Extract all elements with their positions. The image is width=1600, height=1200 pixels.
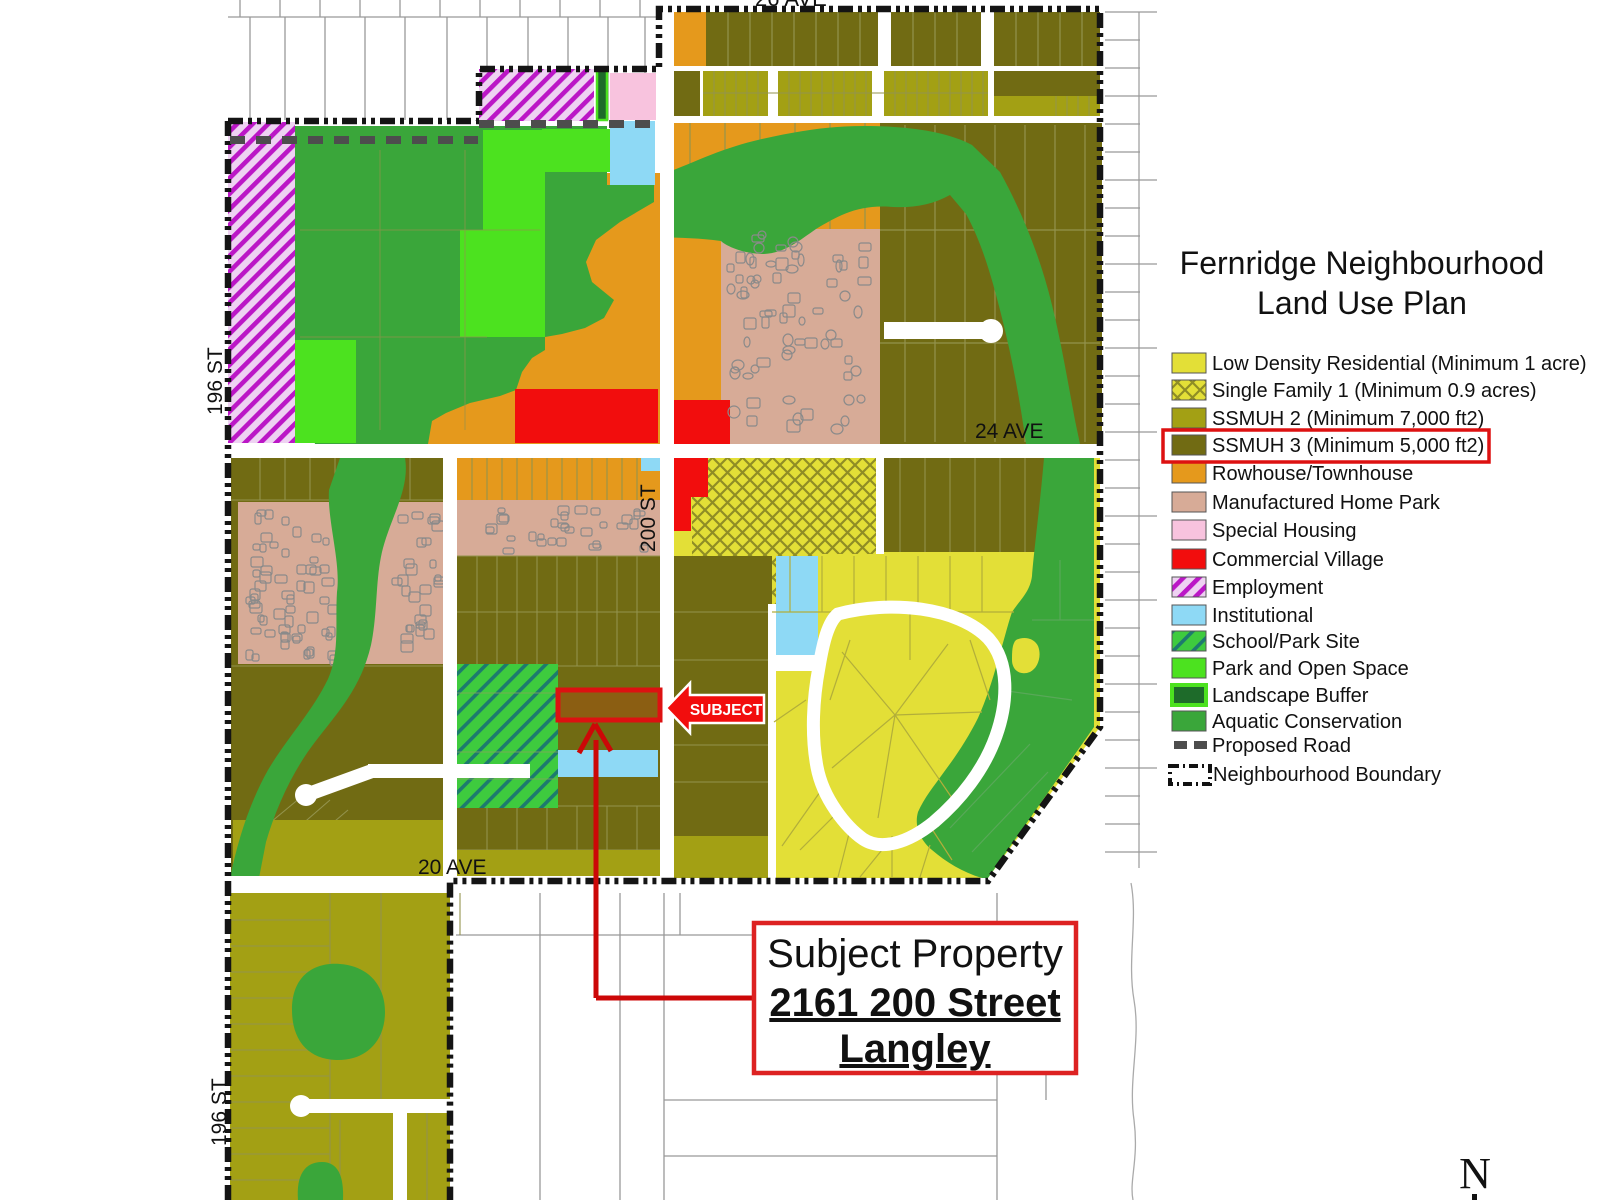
svg-text:Subject Property: Subject Property <box>767 932 1063 976</box>
svg-text:Low Density Residential (Minim: Low Density Residential (Minimum 1 acre) <box>1212 353 1587 375</box>
svg-text:20 AVE: 20 AVE <box>418 856 487 879</box>
svg-text:Fernridge Neighbourhood: Fernridge Neighbourhood <box>1180 245 1545 281</box>
svg-text:Aquatic Conservation: Aquatic Conservation <box>1212 711 1402 733</box>
svg-text:196 ST: 196 ST <box>204 347 227 415</box>
svg-text:Landscape Buffer: Landscape Buffer <box>1212 685 1369 707</box>
svg-text:Park and Open Space: Park and Open Space <box>1212 658 1409 680</box>
svg-text:SSMUH 3 (Minimum 5,000 ft2): SSMUH 3 (Minimum 5,000 ft2) <box>1212 435 1484 457</box>
svg-text:N: N <box>1459 1149 1491 1198</box>
svg-text:Land Use Plan: Land Use Plan <box>1257 285 1467 321</box>
svg-text:Employment: Employment <box>1212 577 1324 599</box>
svg-text:Institutional: Institutional <box>1212 605 1313 627</box>
svg-text:Single Family 1 (Minimum 0.9 a: Single Family 1 (Minimum 0.9 acres) <box>1212 380 1537 402</box>
svg-text:2161 200 Street: 2161 200 Street <box>769 981 1060 1025</box>
svg-text:SUBJECT: SUBJECT <box>690 702 763 719</box>
svg-text:200 ST: 200 ST <box>637 484 660 552</box>
svg-text:Rowhouse/Townhouse: Rowhouse/Townhouse <box>1212 463 1413 485</box>
svg-text:Special Housing: Special Housing <box>1212 520 1357 542</box>
svg-text:Commercial Village: Commercial Village <box>1212 549 1384 571</box>
svg-text:Neighbourhood Boundary: Neighbourhood Boundary <box>1213 764 1441 786</box>
svg-text:SSMUH 2 (Minimum 7,000 ft2): SSMUH 2 (Minimum 7,000 ft2) <box>1212 408 1484 430</box>
svg-text:196 ST: 196 ST <box>208 1078 231 1146</box>
svg-text:24 AVE: 24 AVE <box>975 420 1044 443</box>
svg-text:Langley: Langley <box>839 1027 991 1071</box>
svg-text:Proposed Road: Proposed Road <box>1212 735 1351 757</box>
svg-text:School/Park Site: School/Park Site <box>1212 631 1360 653</box>
svg-text:Manufactured Home Park: Manufactured Home Park <box>1212 492 1441 514</box>
